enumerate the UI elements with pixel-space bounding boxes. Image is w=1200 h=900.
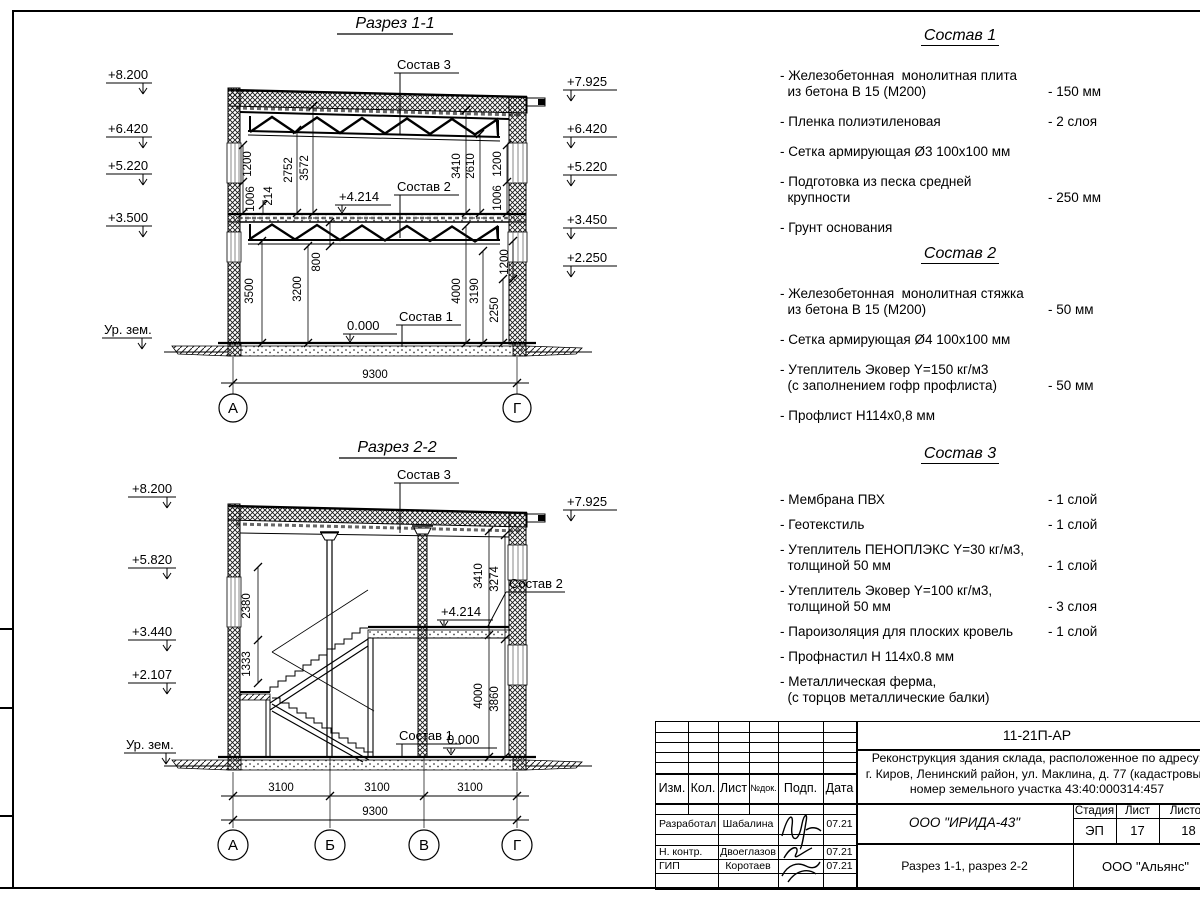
dimension-label: 1200 [492, 151, 504, 177]
dimension-label: 2380 [241, 593, 253, 619]
name-developer: Шабалина [718, 814, 778, 834]
bottom-dimensions: 3100 3100 3100 9300 А Б В Г [218, 757, 532, 860]
elevation-mark: +5.820 [132, 552, 172, 567]
leader-sostav-1: Состав 1 [399, 309, 453, 324]
col-kol: Кол. [688, 773, 718, 803]
dimension-label: 214 [263, 186, 275, 206]
left-wall [227, 504, 241, 757]
leader-sostav-1: Состав 1 [399, 728, 453, 743]
dimension-lines: 1200 1006 214 2752 3572 3500 3200 800 34… [239, 102, 517, 347]
axis-bubble-g: Г [513, 400, 521, 417]
dimension-label: 3200 [292, 276, 304, 302]
leader-sostav-3: Состав 3 [397, 467, 451, 482]
elevation-mark: +7.925 [567, 74, 607, 89]
col-data: Дата [823, 773, 856, 803]
name-gip: Коротаев [718, 859, 778, 873]
ground-level-mark: Ур. зем. [126, 737, 174, 752]
axis-bubble-a: А [228, 837, 238, 854]
elevation-marks-right: +7.925 +6.420 +5.220 +3.450 +2.250 [563, 74, 617, 277]
list-item: - Утеплитель Эковер Y=100 кг/м3, толщино… [780, 583, 1140, 615]
ground-level-mark: Ур. зем. [104, 322, 152, 337]
elevation-mark: +6.420 [567, 121, 607, 136]
section-2-2-drawing: Разрез 2-2 [0, 440, 660, 890]
elevation-mark: +2.107 [132, 667, 172, 682]
col-izm: Изм. [656, 773, 688, 803]
list-item: - Профнастил Н 114х0.8 мм [780, 649, 1140, 665]
composition-3: Состав 3 - Мембрана ПВХ- 1 слой - Геотек… [780, 446, 1140, 715]
section-1-1-drawing: Разрез 1-1 [0, 0, 660, 440]
sheet-content-title: Разрез 1-1, разрез 2-2 [856, 844, 1073, 889]
roof-slab [228, 90, 545, 115]
dimension-label: 2610 [465, 153, 477, 179]
compositions-panel: Состав 1 - Железобетонная монолитная пли… [780, 0, 1180, 720]
project-description-line2: г. Киров, Ленинский район, ул. Маклина, … [856, 767, 1200, 783]
bottom-dimension: 9300 А Г [219, 357, 531, 422]
list-item: - Утеплитель ПЕНОПЛЭКС Y=30 кг/м3, толщи… [780, 542, 1140, 574]
elevation-mark: +7.925 [567, 494, 607, 509]
list-item: - Сетка армирующая Ø4 100х100 мм [780, 332, 1140, 348]
dimension-label: 3500 [244, 278, 256, 304]
stair-landing [240, 692, 270, 757]
project-description-line1: Реконструкция здания склада, расположенн… [856, 751, 1200, 767]
elevation-mark-zero: 0.000 [447, 732, 480, 747]
dimension-label: 2250 [489, 297, 501, 323]
role-developer: Разработал [659, 814, 717, 834]
mid-floor-truss [240, 222, 509, 244]
dimension-label-total: 9300 [362, 369, 388, 381]
dimension-label: 3860 [489, 686, 501, 712]
document-code: 11-21П-АР [856, 723, 1200, 748]
staircase [270, 590, 374, 762]
dimension-label: 3190 [469, 278, 481, 304]
mid-floor-slab [228, 214, 526, 222]
elevation-mark: +3.500 [108, 210, 148, 225]
list-item: - Железобетонная монолитная стяжка из бе… [780, 286, 1140, 318]
section-2-2-title: Разрез 2-2 [339, 440, 457, 458]
elevation-mark: +3.450 [567, 212, 607, 227]
dimension-label: 1200 [242, 151, 254, 177]
dimension-label: 1333 [241, 651, 253, 677]
sheets-label: Листов [1159, 804, 1200, 818]
stage-label: Стадия [1073, 804, 1116, 818]
date-ncontrol: 07.21 [823, 845, 856, 859]
list-item: - Профлист Н114х0,8 мм [780, 408, 1140, 424]
list-item: - Мембрана ПВХ- 1 слой [780, 492, 1140, 508]
signature-icon [778, 840, 824, 886]
composition-1-title: Состав 1 [780, 28, 1140, 44]
right-wall [508, 513, 527, 757]
composition-2-title: Состав 2 [780, 246, 1140, 262]
stage-value: ЭП [1073, 819, 1116, 842]
composition-2: Состав 2 - Железобетонная монолитная стя… [780, 246, 1140, 438]
col-podp: Подп. [778, 773, 823, 803]
roof-slab [228, 506, 545, 537]
list-item: - Подготовка из песка средней крупности-… [780, 174, 1140, 206]
elevation-mark-mid: +4.214 [339, 189, 379, 204]
list-item: - Геотекстиль- 1 слой [780, 517, 1140, 533]
elevation-mark: +5.220 [567, 159, 607, 174]
section-1-1-title: Разрез 1-1 [337, 15, 453, 34]
name-ncontrol: Двоеглазов [718, 845, 778, 859]
list-item: - Железобетонная монолитная плита из бет… [780, 68, 1140, 100]
roof-truss [240, 112, 509, 141]
ground-slab [164, 343, 592, 356]
axis-bubble-b: Б [325, 837, 335, 854]
design-org: ООО "ИРИДА-43" [856, 803, 1073, 843]
list-item: - Утеплитель Эковер Y=150 кг/м3 (с запол… [780, 362, 1140, 394]
composition-1: Состав 1 - Железобетонная монолитная пли… [780, 28, 1140, 250]
drawing-sheet: Разрез 1-1 [0, 0, 1200, 900]
elevation-mark: +6.420 [108, 121, 148, 136]
elevation-mark: +8.200 [132, 481, 172, 496]
axis-bubble-a: А [228, 400, 238, 417]
col-list: Лист [718, 773, 749, 803]
elevation-marks-left: +8.200 +6.420 +5.220 +3.500 Ур. зем. [102, 67, 152, 349]
date-gip: 07.21 [823, 859, 856, 873]
dimension-lines: 2380 1333 3410 3274 4000 3860 [241, 527, 509, 761]
list-item: - Грунт основания [780, 220, 1140, 236]
title-block: Изм. Кол. Лист №док. Подп. Дата Разработ… [655, 721, 1200, 890]
dimension-label: 1006 [245, 186, 257, 212]
dimension-label: 3100 [457, 782, 483, 794]
section-title: Разрез 2-2 [357, 440, 436, 456]
leader-sostav-2: Состав 2 [397, 179, 451, 194]
ground-slab [164, 757, 592, 770]
elevation-mark: +5.220 [108, 158, 148, 173]
list-item: - Сетка армирующая Ø3 100х100 мм [780, 144, 1140, 160]
dimension-label: 4000 [451, 278, 463, 304]
elevation-mark: +3.440 [132, 624, 172, 639]
dimension-label: 1200 [499, 249, 511, 275]
axis-bubble-v: В [419, 837, 429, 854]
project-description: Реконструкция здания склада, расположенн… [856, 751, 1200, 802]
wall-v [412, 526, 433, 757]
section-title: Разрез 1-1 [355, 15, 434, 32]
elevation-mark: +8.200 [108, 67, 148, 82]
dimension-label: 800 [311, 252, 323, 271]
dimension-label: 2752 [283, 157, 295, 183]
col-ndok: №док. [749, 773, 778, 803]
dimension-label: 3274 [489, 566, 501, 592]
leader-sostav-2: Состав 2 [509, 576, 563, 591]
sheets-total: 18 [1159, 819, 1200, 842]
elevation-mark-zero: 0.000 [347, 318, 380, 333]
composition-3-title: Состав 3 [780, 446, 1140, 462]
dimension-label: 1006 [492, 185, 504, 211]
dimension-label: 3100 [268, 782, 294, 794]
elevation-marks-right: +7.925 [563, 494, 617, 521]
role-ncontrol: Н. контр. [659, 845, 717, 859]
sheet-number: 17 [1116, 819, 1159, 842]
elevation-mark: +2.250 [567, 250, 607, 265]
dimension-label: 3410 [451, 153, 463, 179]
dimension-label-total: 9300 [362, 806, 388, 818]
list-item: - Пароизоляция для плоских кровель- 1 сл… [780, 624, 1140, 640]
list-item: - Пленка полиэтиленовая- 2 слоя [780, 114, 1140, 130]
date-developer: 07.21 [823, 814, 856, 834]
dimension-label: 3100 [364, 782, 390, 794]
list-item: - Металлическая ферма, (с торцов металли… [780, 674, 1140, 706]
sheet-label: Лист [1116, 804, 1159, 818]
dimension-label: 3410 [473, 563, 485, 589]
dimension-label: 4000 [473, 683, 485, 709]
axis-bubble-g: Г [513, 837, 521, 854]
elevation-marks-left: +8.200 +5.820 +3.440 +2.107 Ур. зем. [124, 481, 176, 764]
role-gip: ГИП [659, 859, 717, 873]
leader-sostav-3: Состав 3 [397, 57, 451, 72]
dimension-label: 3572 [299, 155, 311, 181]
elevation-mark-mid: +4.214 [441, 604, 481, 619]
contractor-org: ООО "Альянс" [1073, 844, 1200, 889]
project-description-line3: номер земельного участка 43:40:000314:45… [856, 782, 1200, 798]
